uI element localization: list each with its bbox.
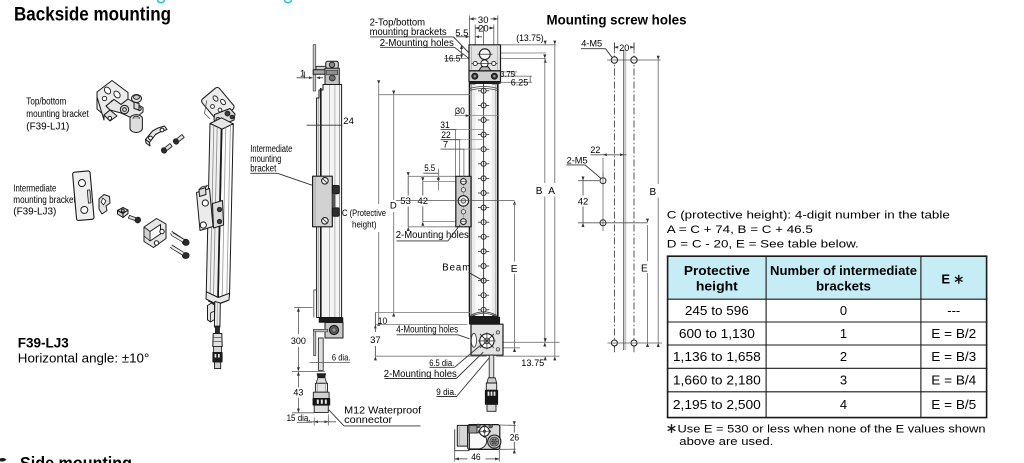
svg-text:5.5: 5.5 bbox=[424, 163, 435, 174]
svg-text:mounting brackets: mounting brackets bbox=[370, 27, 447, 38]
svg-text:Mounting screw holes: Mounting screw holes bbox=[547, 13, 687, 28]
svg-text:6.25: 6.25 bbox=[511, 77, 529, 88]
svg-text:2,195 to 2,500: 2,195 to 2,500 bbox=[673, 397, 761, 412]
svg-text:1,136 to 1,658: 1,136 to 1,658 bbox=[673, 349, 761, 364]
svg-text:A = C + 74, B = C + 46.5: A = C + 74, B = C + 46.5 bbox=[667, 224, 813, 236]
svg-text:Top/bottom: Top/bottom bbox=[26, 95, 66, 107]
svg-text:Backside mounting: Backside mounting bbox=[14, 5, 171, 26]
svg-text:4-Mounting holes: 4-Mounting holes bbox=[396, 325, 458, 336]
svg-text:Beam: Beam bbox=[442, 262, 471, 273]
svg-text:2: 2 bbox=[840, 349, 847, 364]
svg-text:brackets: brackets bbox=[816, 278, 871, 293]
svg-text:E = B/5: E = B/5 bbox=[931, 397, 976, 412]
svg-text:Use E = 530 or less when none: Use E = 530 or less when none of the E v… bbox=[678, 424, 986, 436]
svg-text:connector: connector bbox=[344, 415, 393, 426]
svg-text:43: 43 bbox=[293, 387, 303, 397]
svg-text:4-M5: 4-M5 bbox=[581, 38, 602, 49]
svg-text:42: 42 bbox=[578, 196, 589, 207]
svg-text:Side mounting: Side mounting bbox=[20, 453, 132, 463]
svg-text:Number of intermediate: Number of intermediate bbox=[770, 263, 917, 278]
svg-text:(F39-LJ1): (F39-LJ1) bbox=[26, 121, 69, 133]
svg-text:B: B bbox=[536, 186, 543, 197]
svg-text:B: B bbox=[650, 187, 657, 198]
svg-text:1,660 to 2,180: 1,660 to 2,180 bbox=[673, 373, 761, 388]
svg-text:245 to 596: 245 to 596 bbox=[685, 303, 749, 318]
svg-text:mounting bracket: mounting bracket bbox=[26, 108, 89, 120]
svg-text:E: E bbox=[641, 263, 648, 274]
svg-text:10: 10 bbox=[378, 316, 388, 327]
svg-text:mounting bracket: mounting bracket bbox=[13, 194, 76, 206]
svg-text:4: 4 bbox=[840, 397, 847, 412]
svg-text:F39-LJ3: F39-LJ3 bbox=[18, 335, 69, 351]
svg-text:13.75: 13.75 bbox=[521, 358, 544, 369]
svg-text:46: 46 bbox=[471, 452, 481, 463]
svg-text:C (protective height): 4-digi: C (protective height): 4-digit number in… bbox=[667, 209, 950, 221]
svg-text:---: --- bbox=[947, 303, 960, 318]
svg-text:D: D bbox=[390, 200, 397, 211]
svg-text:A: A bbox=[548, 186, 555, 197]
svg-text:24: 24 bbox=[343, 116, 354, 127]
svg-text:53: 53 bbox=[400, 196, 411, 207]
svg-text:37: 37 bbox=[370, 335, 381, 346]
svg-text:16.5: 16.5 bbox=[444, 53, 460, 64]
svg-text:E = B/3: E = B/3 bbox=[931, 349, 976, 364]
svg-text:E = B/2: E = B/2 bbox=[931, 326, 976, 341]
svg-text:Intermediate: Intermediate bbox=[13, 182, 56, 194]
svg-text:E: E bbox=[511, 264, 518, 275]
svg-text:26: 26 bbox=[510, 432, 520, 443]
svg-text:Horizontal angle: ±10°: Horizontal angle: ±10° bbox=[18, 351, 150, 366]
svg-text:3: 3 bbox=[840, 373, 847, 388]
svg-text:42: 42 bbox=[418, 196, 429, 207]
svg-text:600 to 1,130: 600 to 1,130 bbox=[679, 326, 755, 341]
svg-text:D = C - 20, E = See table belo: D = C - 20, E = See table below. bbox=[667, 239, 859, 251]
svg-text:20: 20 bbox=[478, 24, 489, 35]
svg-text:2-Mounting holes: 2-Mounting holes bbox=[396, 230, 469, 241]
svg-text:E: E bbox=[941, 272, 950, 287]
svg-text:E = B/4: E = B/4 bbox=[931, 373, 976, 388]
svg-text:20: 20 bbox=[619, 43, 629, 53]
svg-text:C (Protective: C (Protective bbox=[342, 208, 386, 219]
svg-text:0: 0 bbox=[840, 303, 847, 318]
svg-text:above are used.: above are used. bbox=[679, 436, 773, 448]
svg-text:Protective: Protective bbox=[684, 263, 750, 278]
svg-text:1: 1 bbox=[840, 326, 847, 341]
svg-text:300: 300 bbox=[291, 336, 306, 346]
svg-text:height): height) bbox=[352, 219, 377, 230]
svg-text:height: height bbox=[696, 278, 739, 293]
svg-text:22: 22 bbox=[590, 145, 600, 156]
svg-text:(F39-LJ3): (F39-LJ3) bbox=[13, 205, 56, 217]
svg-text:(13.75): (13.75) bbox=[516, 33, 544, 44]
